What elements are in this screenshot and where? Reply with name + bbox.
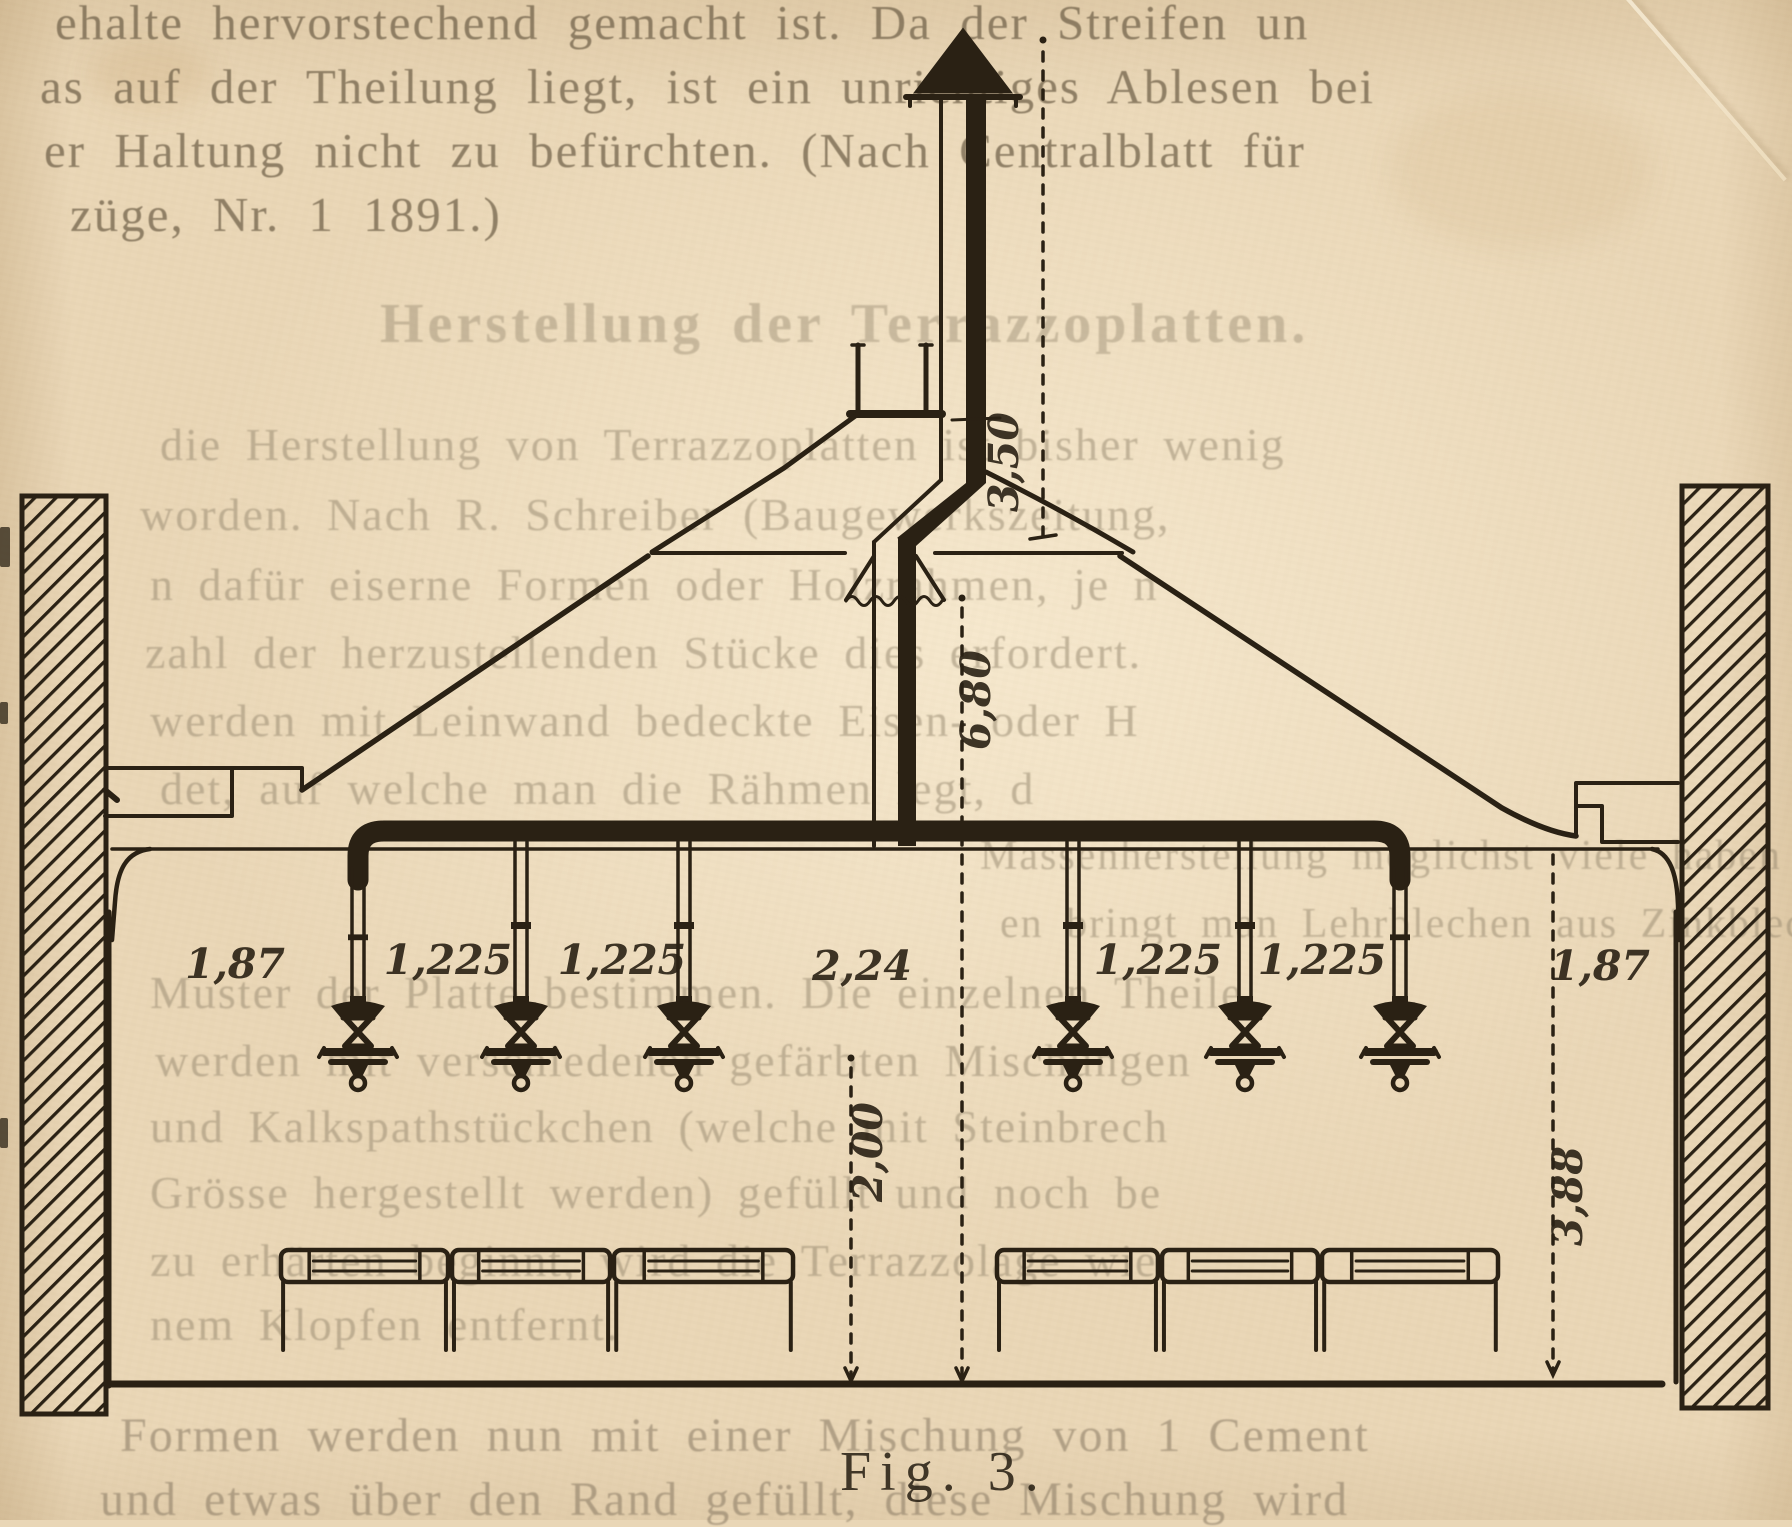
ghost-text-line: und Kalkspathstückchen (welche mit Stein… xyxy=(150,1100,1169,1153)
ghost-text-line: zahl der herzustellenden Stücke dies erf… xyxy=(145,626,1142,679)
scan-edge-mark xyxy=(0,1118,8,1148)
ghost-text-line: Grösse hergestellt werden) gefüllt und n… xyxy=(150,1166,1162,1219)
ghost-text-line: werden mit Leinwand bedeckte Eisen- oder… xyxy=(150,694,1140,747)
ghost-text-line: en bringt man Lehrblechen aus Zinkblech xyxy=(1000,900,1792,948)
scan-edge-mark xyxy=(0,527,10,567)
ghost-text-line: die Herstellung von Terrazzoplatten ist … xyxy=(160,418,1286,471)
top-text-line: as auf der Theilung liegt, ist ein unric… xyxy=(40,58,1375,115)
ghost-text-line: n dafür eiserne Formen oder Holzrahmen, … xyxy=(150,558,1159,611)
figure-caption: Fig. 3. xyxy=(840,1440,1048,1504)
ghost-text-line: nem Klopfen entfernt. xyxy=(150,1298,619,1351)
ghost-text-line: zu erhärten beginnt, wird die Terrazzola… xyxy=(150,1234,1157,1287)
scan-edge-mark xyxy=(0,702,8,724)
bottom-text-line: und etwas über den Rand gefüllt, diese M… xyxy=(100,1472,1349,1527)
paper-stain xyxy=(1390,90,1650,250)
bottom-text-line: Formen werden nun mit einer Mischung von… xyxy=(120,1408,1370,1463)
ghost-heading: Herstellung der Terrazzoplatten. xyxy=(380,292,1309,356)
ghost-text-line: Massenherstellung möglichst viele haben … xyxy=(980,832,1792,880)
ghost-text-line: werden mit verschiedenen gefärbten Misch… xyxy=(155,1034,1192,1087)
top-text-line: er Haltung nicht zu befürchten. (Nach Ce… xyxy=(44,122,1306,179)
ghost-text-line: det, auf welche man die Rähmen legt, d xyxy=(160,762,1035,815)
ghost-text-line: Muster der Platte bestimmen. Die einzeln… xyxy=(150,966,1243,1019)
scanned-page: { "page": { "top_lines": [ "ehalte hervo… xyxy=(0,0,1792,1520)
top-text-line: züge, Nr. 1 1891.) xyxy=(70,186,502,243)
ghost-text-line: worden. Nach R. Schreiber (Baugewerkszei… xyxy=(140,488,1171,541)
top-text-line: ehalte hervorstechend gemacht ist. Da de… xyxy=(55,0,1309,51)
